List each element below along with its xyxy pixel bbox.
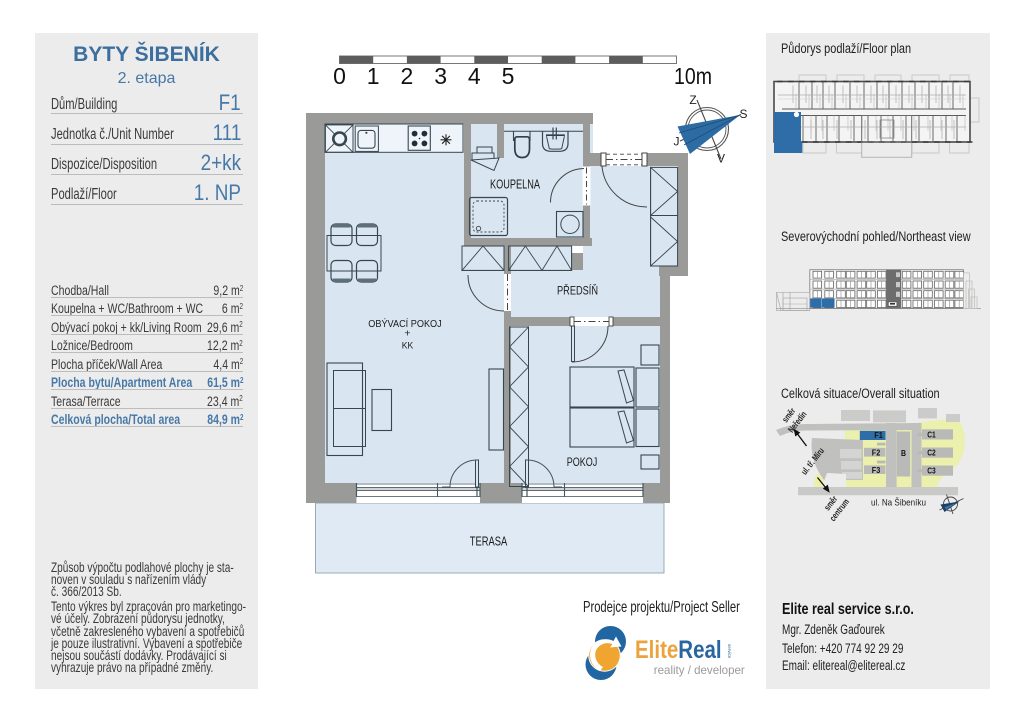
svg-text:10m: 10m bbox=[674, 63, 712, 89]
svg-text:V: V bbox=[717, 152, 725, 166]
svg-text:J: J bbox=[674, 135, 680, 149]
svg-text:KK: KK bbox=[402, 340, 414, 351]
svg-text:B: B bbox=[901, 449, 906, 458]
svg-text:ul. Na Šibeníku: ul. Na Šibeníku bbox=[871, 497, 926, 508]
svg-text:TERASA: TERASA bbox=[470, 534, 508, 549]
svg-text:2: 2 bbox=[401, 63, 414, 89]
svg-text:F2: F2 bbox=[872, 448, 881, 457]
svg-text:KOUPELNA: KOUPELNA bbox=[490, 176, 540, 191]
svg-text:+: + bbox=[404, 328, 410, 340]
svg-text:0: 0 bbox=[333, 63, 346, 89]
svg-text:S: S bbox=[739, 107, 747, 121]
svg-text:F3: F3 bbox=[872, 466, 881, 475]
svg-text:Z: Z bbox=[689, 93, 696, 107]
svg-text:PŘEDSÍŇ: PŘEDSÍŇ bbox=[557, 283, 598, 298]
svg-text:POKOJ: POKOJ bbox=[567, 457, 598, 469]
svg-text:5: 5 bbox=[502, 63, 515, 89]
svg-text:1: 1 bbox=[367, 63, 380, 89]
svg-text:4: 4 bbox=[468, 63, 481, 89]
svg-text:3: 3 bbox=[434, 63, 447, 89]
svg-text:F1: F1 bbox=[874, 431, 883, 440]
svg-text:C3: C3 bbox=[927, 467, 936, 476]
svg-text:C2: C2 bbox=[927, 449, 936, 458]
svg-text:C1: C1 bbox=[927, 431, 936, 440]
